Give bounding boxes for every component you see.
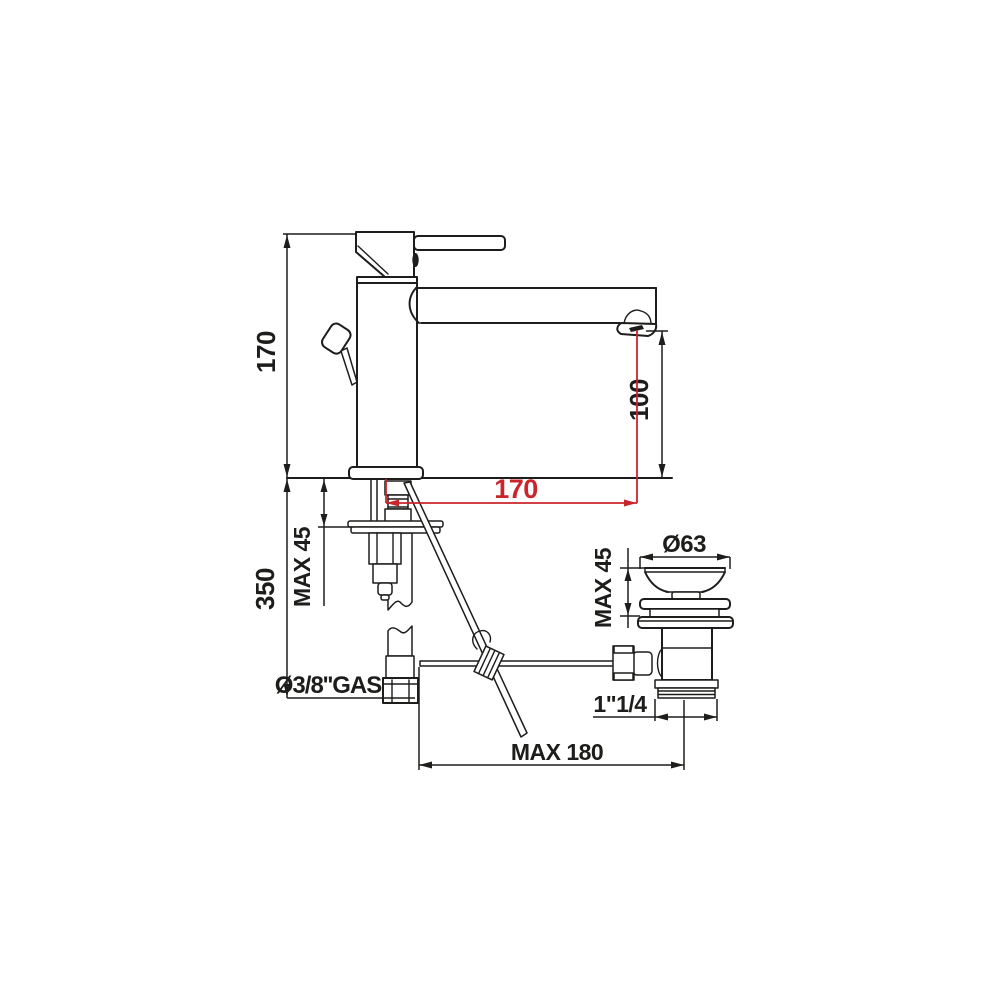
supply-hose-braid bbox=[386, 656, 414, 678]
supply-pipe-lower bbox=[388, 626, 412, 656]
pull-rod bbox=[404, 482, 527, 737]
spout bbox=[410, 288, 657, 336]
waste-flange-2 bbox=[638, 617, 733, 628]
pop-up-waste bbox=[613, 568, 733, 698]
waste-flange-1 bbox=[640, 599, 730, 609]
dim-rod-reach: MAX 180 bbox=[419, 667, 684, 770]
dim-outlet-height-label: 100 bbox=[624, 379, 654, 421]
horizontal-rod bbox=[420, 661, 616, 666]
handle-pivot bbox=[412, 253, 418, 267]
dim-spout-reach-red: 170 bbox=[386, 330, 637, 507]
dim-under-counter-label: 350 bbox=[250, 568, 280, 610]
dim-waste-clamping-label: MAX 45 bbox=[590, 547, 616, 628]
mounting-stud bbox=[371, 479, 377, 522]
dim-counter-thickness-label: MAX 45 bbox=[289, 526, 315, 607]
dim-waste-thread-label: 1"1/4 bbox=[593, 691, 647, 717]
label-supply-thread: Ø3/8''GAS bbox=[275, 672, 382, 699]
dim-counter-thickness: MAX 45 bbox=[289, 478, 352, 607]
ball-joint-knurled-nut bbox=[613, 646, 634, 680]
dim-rod-reach-label: MAX 180 bbox=[511, 739, 603, 765]
waste-tailpiece bbox=[655, 680, 718, 698]
dim-waste-clamping: MAX 45 bbox=[590, 547, 645, 628]
waste-plug-tab bbox=[672, 592, 700, 599]
ball-joint-connector bbox=[633, 652, 652, 675]
supply-thread-text: Ø3/8''GAS bbox=[275, 672, 382, 699]
dim-total-height-label: 170 bbox=[251, 331, 281, 373]
dim-spout-reach-label: 170 bbox=[494, 474, 538, 504]
dim-waste-diameter-label: Ø63 bbox=[662, 531, 706, 558]
lever-handle bbox=[414, 236, 505, 250]
technical-drawing: 170 350 MAX 45 100 170 Ø3/8''GAS bbox=[0, 0, 1000, 1000]
supply-shank-assembly bbox=[348, 479, 443, 703]
supply-hex-nut bbox=[383, 678, 418, 703]
waste-flare bbox=[645, 568, 725, 592]
faucet bbox=[320, 232, 656, 479]
waste-neck bbox=[650, 609, 719, 617]
pop-up-knob bbox=[320, 321, 357, 385]
dim-total-height: 170 bbox=[251, 234, 356, 478]
base-flange bbox=[349, 467, 423, 479]
waste-body bbox=[662, 628, 712, 680]
drawing-canvas: 170 350 MAX 45 100 170 Ø3/8''GAS bbox=[0, 0, 1000, 1000]
dim-waste-diameter: Ø63 bbox=[640, 531, 730, 569]
faucet-body bbox=[357, 277, 417, 467]
dim-outlet-height: 100 bbox=[624, 331, 668, 478]
cartridge-head bbox=[356, 232, 414, 277]
